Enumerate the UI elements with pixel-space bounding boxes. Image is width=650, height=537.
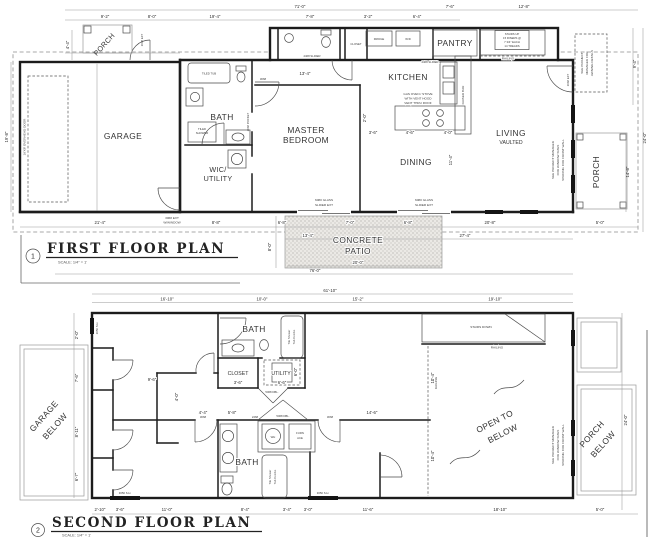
svg-text:5'-8": 5'-8" [228,410,237,415]
svg-text:24'-0": 24'-0" [623,414,628,425]
porch-front-label: PORCH [591,156,601,188]
svg-text:TILED TUB: TILED TUB [202,72,216,76]
svg-text:3050 S.H.: 3050 S.H. [317,491,330,495]
svg-text:3'-4": 3'-4" [283,507,292,512]
svg-text:76'-0": 76'-0" [310,268,321,273]
raised-bar-label: RAISED BAR [461,85,465,105]
svg-text:7'-6": 7'-6" [74,373,79,382]
svg-text:CLOSET: CLOSET [228,371,250,377]
svg-text:13'-4": 13'-4" [303,233,314,238]
porch-below-outline [577,318,636,495]
svg-text:4'-0": 4'-0" [174,392,179,401]
svg-text:WH: WH [271,435,276,439]
svg-text:3'-6": 3'-6" [369,130,378,135]
stairs-break-line [505,314,545,342]
svg-text:4'-0": 4'-0" [444,130,453,135]
dimension-lines-2 [74,294,647,537]
svg-text:27'-4": 27'-4" [460,233,471,238]
svg-text:21'-4": 21'-4" [95,220,106,225]
svg-text:5068 DBL.: 5068 DBL. [265,390,278,394]
dim-overall: 71'-0" [295,4,306,9]
first-floor-title: FIRST FLOOR PLAN [47,241,225,257]
svg-text:24'-0": 24'-0" [642,132,647,143]
bath-bottom-label: BATH [235,457,258,467]
svg-text:9'-6": 9'-6" [148,377,157,382]
svg-text:3068 EXT: 3068 EXT [165,216,179,220]
svg-text:6'-8": 6'-8" [278,220,287,225]
svg-text:9'-4": 9'-4" [632,59,637,68]
second-floor-scale: SCALE: 1/4" = 1' [62,533,91,537]
svg-text:CLOSET: CLOSET [350,42,361,46]
first-floor-plan: 71'-0" 7'-6" 12'-8" 9'-2" 8'-0" 19'-4" 7… [4,4,647,283]
svg-text:7'-0": 7'-0" [346,220,355,225]
svg-text:6080 GLASS: 6080 GLASS [415,198,433,202]
svg-text:8'-4": 8'-4" [241,507,250,512]
svg-text:8'-11": 8'-11" [74,426,79,437]
svg-text:1: 1 [31,254,35,261]
svg-text:61'-10": 61'-10" [323,288,337,293]
fridge-label: FRIDGE [374,37,385,41]
second-floor-walls [92,313,573,498]
svg-text:GAS OVEN / STOVE: GAS OVEN / STOVE [403,92,432,96]
svg-text:11'-6": 11'-6" [363,507,374,512]
svg-text:FOR WINDOW SIZES: FOR WINDOW SIZES [556,145,560,176]
porch-left [65,25,180,53]
svg-text:5'-0": 5'-0" [596,220,605,225]
porch-label: PORCH [92,31,117,57]
svg-text:SPACING FOR FRONT WALL: SPACING FOR FRONT WALL [561,139,565,181]
svg-text:Tile Shower: Tile Shower [287,330,291,345]
svg-text:4'-6": 4'-6" [406,130,415,135]
svg-text:14'-6": 14'-6" [367,410,378,415]
first-floor-scale: SCALE: 1/4" = 1' [58,260,87,265]
svg-text:W/WINDOW: W/WINDOW [163,221,180,225]
svg-text:3'-6": 3'-6" [234,380,243,385]
svg-text:FURN: FURN [296,431,304,435]
svg-text:ACE: ACE [297,436,303,440]
washer-dryer-label: W/D [405,37,410,41]
second-floor-plan: 61'-10" 16'-10" 10'-0" 15'-2" 19'-10" 2'… [20,288,647,537]
svg-text:6080 GLASS: 6080 GLASS [315,198,333,202]
bath-top-label: BATH [242,324,265,334]
svg-text:7'-6": 7'-6" [446,4,455,9]
svg-text:6'-0": 6'-0" [293,367,298,376]
svg-text:Tile Shower: Tile Shower [268,470,272,485]
svg-text:5'-0": 5'-0" [596,507,605,512]
svg-text:RAILING: RAILING [491,346,504,350]
second-floor-title-block: 2 SECOND FLOOR PLAN SCALE: 1/4" = 1' [32,515,263,537]
room-labels-2: GARAGE BELOW BATH CLOSET UTILITY BATH WH… [27,324,617,467]
svg-text:SEE PROJECT MANAGER: SEE PROJECT MANAGER [551,425,555,464]
svg-text:MASTER: MASTER [287,125,324,135]
svg-text:18'-10": 18'-10" [493,507,507,512]
floor-plan-drawing: 71'-0" 7'-6" 12'-8" 9'-2" 8'-0" 19'-4" 7… [0,0,650,537]
svg-text:12'-8": 12'-8" [519,4,530,9]
svg-text:RAILING: RAILING [434,376,438,389]
svg-text:3'-0": 3'-0" [304,507,313,512]
kitchen-label: KITCHEN [388,72,428,82]
svg-text:SPACING FOR FRONT WALL: SPACING FOR FRONT WALL [561,424,565,466]
svg-text:10'-4": 10'-4" [430,450,435,461]
svg-text:6'-6": 6'-6" [278,380,287,385]
svg-text:WIC/: WIC/ [209,165,226,174]
svg-text:13'-4": 13'-4" [300,71,311,76]
svg-text:WITH VENT HOOD: WITH VENT HOOD [404,97,432,101]
svg-text:2668 POCKET: 2668 POCKET [246,112,250,131]
svg-text:SEE PROJECT: SEE PROJECT [580,52,584,74]
garage-label: GARAGE [104,131,142,141]
svg-text:3068: 3068 [200,415,207,419]
svg-text:VAULTED: VAULTED [499,140,522,146]
svg-text:FOR WINDOW SIZES: FOR WINDOW SIZES [556,430,560,461]
svg-text:15'-2": 15'-2" [353,297,364,302]
svg-text:SHOWER: SHOWER [196,131,209,135]
svg-text:14 TREADS: 14 TREADS [504,44,519,48]
svg-text:PATIO: PATIO [345,246,371,256]
svg-text:3068 EXT: 3068 EXT [140,33,144,46]
svg-text:3050 S.H.: 3050 S.H. [95,322,99,335]
svg-text:3'-2": 3'-2" [364,14,373,19]
second-floor-title: SECOND FLOOR PLAN [52,515,251,531]
svg-text:6'-4": 6'-4" [413,14,422,19]
svg-text:2'-0": 2'-0" [362,113,367,122]
svg-text:10'-0": 10'-0" [257,297,268,302]
svg-text:7'-8": 7'-8" [306,14,315,19]
svg-text:2468: 2468 [252,415,259,419]
svg-text:8'-8": 8'-8" [212,220,221,225]
dining-label: DINING [400,157,432,167]
svg-text:BEDROOM: BEDROOM [283,135,329,145]
svg-text:3068 EXT: 3068 EXT [566,73,570,86]
svg-text:20'-0": 20'-0" [353,260,364,265]
svg-text:Tub Combo: Tub Combo [292,329,296,344]
svg-text:MANAGER FOR: MANAGER FOR [585,51,589,75]
floor-fill [20,28,573,212]
svg-text:2'-0": 2'-0" [74,330,79,339]
svg-text:3068: 3068 [260,77,267,81]
svg-text:16'-10": 16'-10" [160,297,174,302]
svg-text:19'-10": 19'-10" [488,297,502,302]
svg-text:14'-8": 14'-8" [625,166,630,177]
pantry-label: PANTRY [437,38,473,48]
svg-text:6'-8": 6'-8" [404,220,413,225]
svg-text:8'-0": 8'-0" [148,14,157,19]
svg-text:11'-4": 11'-4" [448,154,453,165]
svg-text:SEE PROJECT MANAGER: SEE PROJECT MANAGER [551,140,555,179]
svg-text:CONCRETE: CONCRETE [333,235,383,245]
svg-text:SLIDER EXT: SLIDER EXT [315,203,333,207]
svg-text:AWNING DETAILS: AWNING DETAILS [590,50,594,76]
svg-text:5068 DBL.: 5068 DBL. [276,414,289,418]
living-label: LIVING [496,128,526,138]
svg-text:SLIDER EXT: SLIDER EXT [415,203,433,207]
svg-text:Tub Combo: Tub Combo [273,469,277,484]
svg-text:9'-2": 9'-2" [101,14,110,19]
svg-text:8'-0": 8'-0" [267,242,272,251]
bath-label: BATH [210,112,233,122]
svg-text:3050 S.H.: 3050 S.H. [119,491,132,495]
first-floor-title-block: 1 FIRST FLOOR PLAN SCALE: 1/4" = 1' [26,241,238,265]
svg-text:UTILITY: UTILITY [271,371,291,377]
annotations-2: STAIRS DOWN RAILING RAILING Tile Shower … [95,322,565,495]
svg-text:UTILITY: UTILITY [204,174,233,183]
svg-text:RAILING: RAILING [502,57,515,61]
svg-text:VENT THRU ROOF: VENT THRU ROOF [404,101,431,105]
overhead-door-label: 16'X8' OVERHEAD DOOR [23,118,27,156]
svg-text:11'-0": 11'-0" [162,507,173,512]
svg-text:6'-7": 6'-7" [74,472,79,481]
svg-text:19'-8": 19'-8" [4,131,9,142]
svg-text:4'-4": 4'-4" [65,40,70,49]
svg-text:2468 SLIDER: 2468 SLIDER [303,54,320,58]
svg-text:STAIRS DOWN: STAIRS DOWN [470,325,492,329]
svg-text:2468 SLIDER: 2468 SLIDER [421,60,438,64]
svg-text:2: 2 [36,528,40,535]
svg-text:19'-4": 19'-4" [210,14,221,19]
svg-text:20'-8": 20'-8" [485,220,496,225]
svg-text:3'-6": 3'-6" [116,507,125,512]
svg-text:2'-10": 2'-10" [95,507,106,512]
svg-text:3068: 3068 [327,415,334,419]
